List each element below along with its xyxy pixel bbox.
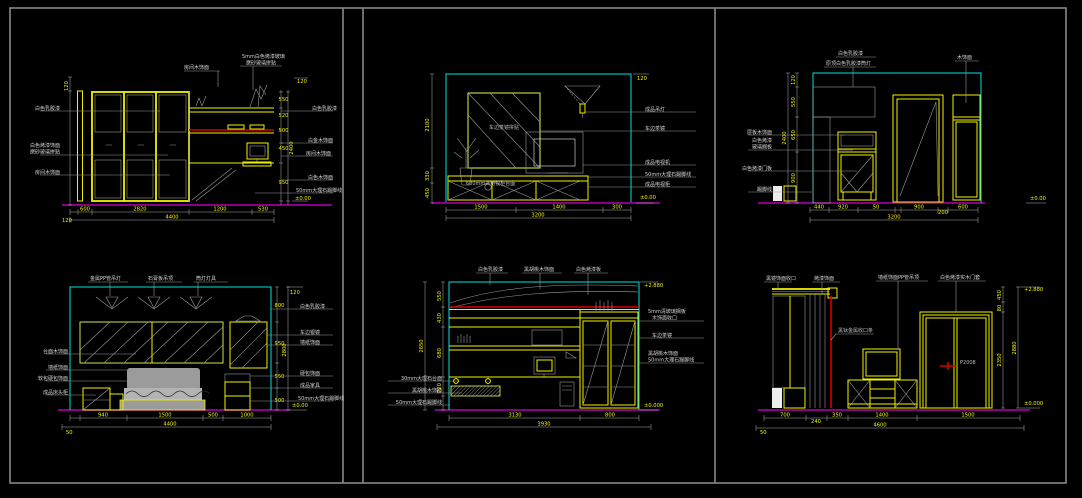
dim-total: 3200	[887, 215, 900, 221]
tall-cabinet	[953, 95, 980, 200]
decor-plants	[196, 85, 267, 107]
dim-text: 50	[760, 430, 767, 436]
left-wardrobe	[772, 289, 830, 408]
elevation-bed-wall: 金属PP管吊灯 石膏板吊顶 筒灯灯具	[38, 275, 344, 436]
dim-text: 1000	[240, 413, 253, 419]
dim-text: 200	[938, 210, 948, 216]
dim-text: 50	[873, 205, 880, 211]
dim-text: 800	[605, 413, 615, 419]
finish-label: 白色乳胶漆	[838, 50, 863, 57]
dim-text: 120	[64, 81, 70, 91]
finish-label: 石膏板吊顶	[148, 275, 173, 282]
dim-text: 500	[279, 128, 289, 134]
dresser-mirror	[863, 349, 900, 379]
finish-label: 磨砂玻璃拼贴	[246, 60, 276, 67]
dim-text: 550	[791, 97, 797, 107]
dim-text: 550	[275, 374, 285, 380]
dim-total: 4600	[873, 423, 886, 429]
dim-text: 240	[811, 419, 821, 425]
dim-text: 900	[791, 173, 797, 183]
finish-label: 白色烤漆实木门套	[940, 274, 980, 281]
dim-text: 950	[279, 180, 289, 186]
finish-label: 白色烤漆饰面	[30, 142, 60, 149]
drawing-sheet: 房间木饰面 5mm白色烤漆玻璃 磨砂玻璃拼贴 白色乳胶漆 白色烤漆饰面 磨砂玻璃…	[0, 0, 1082, 498]
dim-text: 600	[80, 207, 90, 213]
dim-total: 2650	[419, 339, 425, 352]
dim-text: 500	[208, 413, 218, 419]
finish-label: 黑胡桃木饰面	[648, 350, 678, 357]
finish-label: 玻璃搁板	[752, 144, 772, 151]
stereo	[532, 330, 562, 345]
dim-text: 450	[279, 146, 289, 152]
door	[893, 95, 943, 202]
dim-text: 800	[275, 303, 285, 309]
dim-text: 120	[62, 218, 72, 224]
finish-label: 5mm白色烤漆玻璃	[242, 53, 285, 60]
tv-cabinet	[448, 176, 588, 200]
desk-area	[449, 352, 580, 406]
dim-text: 440	[814, 205, 824, 211]
tv	[526, 132, 583, 176]
elevation-study-wall: 白色乳胶漆 黑胡桃木饰面 白色烤漆板 5mm清玻璃搁板 木饰面收口 车边茶镜 黑…	[388, 266, 704, 430]
dim-text: 350	[832, 413, 842, 419]
dim-text: 3130	[508, 413, 521, 419]
ceiling-level: +2.880	[644, 283, 663, 289]
dim-text: 120	[791, 75, 797, 85]
dim-text: 900	[914, 205, 924, 211]
dim-text: 1500	[474, 205, 487, 211]
dim-text: 920	[838, 205, 848, 211]
cabinet-label: 600mm高电视柜台面	[466, 180, 515, 187]
elevation-door-wall: 白色乳胶漆 原顶白色乳胶漆筒灯 木饰面 层板木饰面 白色烤漆 玻璃搁板 白色烤漆…	[742, 50, 1046, 223]
dim-text: 700	[780, 413, 790, 419]
finish-label: 烤漆饰面	[814, 275, 834, 282]
dim-text: 520	[279, 113, 289, 119]
plinth-block	[773, 186, 782, 201]
dim-total: 3200	[531, 213, 544, 219]
dim-text: 550	[279, 97, 289, 103]
finish-label: 5mm清玻璃搁板	[648, 308, 686, 315]
finish-label: 白色烤漆	[752, 137, 772, 144]
finish-label: 黑镜饰面收口	[766, 275, 796, 282]
ceiling-level: +2.880	[1024, 287, 1043, 293]
dim-total: 2400	[289, 141, 295, 154]
elevation-tv-wall: 车边茶镜拼贴 600mm高电视柜台面 成品吊灯 车边茶镜	[425, 74, 696, 221]
side-cabinet	[838, 132, 876, 200]
dim-text: 650	[791, 130, 797, 140]
dim-text: 600	[958, 205, 968, 211]
dim-text: 720	[437, 383, 443, 393]
finish-label: 白色乳胶漆	[478, 266, 503, 273]
dim-text: 330	[425, 171, 431, 181]
finish-label: 白色烤漆板	[576, 266, 601, 273]
finish-label: 墙纸饰面PP管吊顶	[878, 274, 919, 281]
dim-text: 1500	[961, 413, 974, 419]
dim-total: 4400	[163, 422, 176, 428]
dim-text: 680	[437, 348, 443, 358]
dim-total: 3930	[537, 422, 550, 428]
dim-text: 450	[425, 188, 431, 198]
finish-label: 房间木饰面	[184, 64, 209, 71]
dim-text: 1200	[213, 207, 226, 213]
dim-text: 1500	[158, 413, 171, 419]
dim-text: 430	[437, 313, 443, 323]
finish-label: 磨砂玻璃拼贴	[30, 149, 60, 156]
dim-text: 50	[66, 430, 73, 436]
bed	[120, 368, 210, 410]
elevation-bedroom-tv-wall: 黑钛金属收口条 P2008 黑镜饰面收口 烤漆饰面	[756, 274, 1043, 436]
finish-label: 木饰面收口	[652, 315, 677, 322]
dim-total: 4400	[165, 215, 178, 221]
level-mark: ±0.00	[640, 195, 656, 201]
dim-total: 2400	[782, 131, 788, 144]
finish-label: 黑胡桃木饰面	[524, 266, 554, 273]
wall-shelves	[449, 310, 580, 377]
dim-text: 300	[612, 205, 622, 211]
dim-total: 2800	[282, 343, 288, 356]
ceiling-tick: 120	[637, 76, 647, 82]
cad-model-space[interactable]: 房间木饰面 5mm白色烤漆玻璃 磨砂玻璃拼贴 白色乳胶漆 白色烤漆饰面 磨砂玻璃…	[0, 0, 1082, 498]
finish-label: 木饰面	[957, 54, 972, 61]
ceiling-lamps	[96, 297, 212, 309]
ceiling-tick: 120	[290, 290, 300, 296]
finish-label: 50mm大理石踢脚线	[648, 357, 694, 364]
ceiling-tick: 120	[297, 79, 307, 85]
dim-text: 2350	[997, 353, 1003, 366]
decor-bottles	[458, 334, 470, 343]
desk-outline	[192, 168, 236, 201]
dim-text: 450	[997, 290, 1003, 300]
dim-text: 2100	[425, 118, 431, 131]
level-mark: ±0.000	[644, 403, 663, 409]
finish-label: 原顶白色乳胶漆筒灯	[826, 60, 871, 67]
level-mark: ±0.00	[1030, 196, 1046, 202]
door-model-label: P2008	[960, 360, 976, 366]
right-wardrobe: P2008	[920, 312, 992, 408]
trim-label: 黑钛金属收口条	[838, 327, 873, 334]
dim-text: 2820	[133, 207, 146, 213]
dim-text: 80	[997, 305, 1003, 312]
pendant-lamp	[565, 86, 600, 118]
elevation-wardrobe-desk: 房间木饰面 5mm白色烤漆玻璃 磨砂玻璃拼贴 白色乳胶漆 白色烤漆饰面 磨砂玻璃…	[30, 53, 342, 224]
mirror	[230, 316, 267, 368]
pc-tower	[560, 382, 574, 406]
finish-label: 金属PP管吊灯	[90, 275, 121, 282]
floor-plant	[454, 138, 479, 185]
finish-label: 筒灯灯具	[196, 275, 216, 282]
dim-text: 550	[437, 291, 443, 301]
level-mark: ±0.00	[292, 403, 308, 409]
dim-text: 530	[258, 207, 268, 213]
tv-cabinet	[848, 380, 917, 408]
dim-text: 1400	[552, 205, 565, 211]
dim-text: 940	[98, 413, 108, 419]
panel-label: 车边茶镜拼贴	[489, 124, 519, 131]
side-chest	[225, 374, 250, 410]
dim-text: 1400	[875, 413, 888, 419]
dim-total: 2880	[1012, 341, 1018, 354]
bookcase	[580, 300, 638, 408]
level-mark: ±0.000	[1024, 401, 1043, 407]
